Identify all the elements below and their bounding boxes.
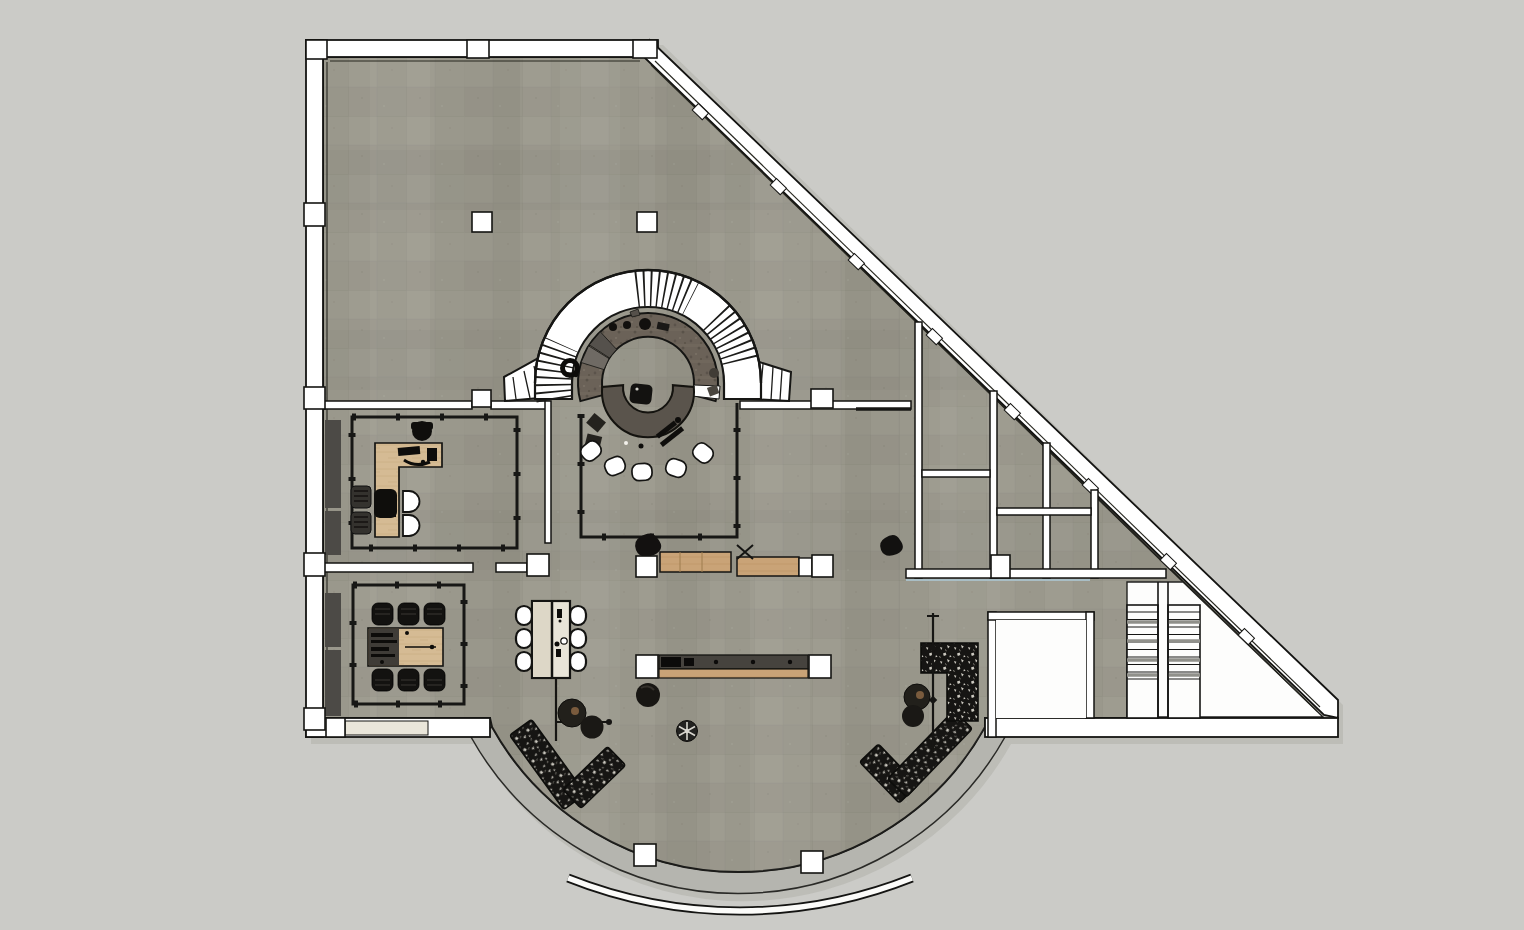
dot: [635, 387, 638, 390]
dining-set: [516, 601, 586, 678]
bar-stool: [631, 463, 652, 481]
floor-plan-canvas: [0, 0, 1524, 930]
dot: [714, 660, 718, 664]
console-front: [659, 669, 808, 678]
column: [809, 655, 831, 678]
column: [472, 212, 492, 232]
dot: [555, 642, 560, 647]
wall-office-meeting-a: [323, 563, 473, 572]
cabinet: [799, 558, 812, 576]
column: [304, 387, 325, 409]
dot: [559, 620, 562, 623]
plan-viewport: [0, 0, 1524, 930]
elevator-room: [996, 620, 1086, 718]
wall-rooms-v2: [990, 391, 997, 578]
bar-center-station: [629, 383, 653, 405]
bench: [660, 552, 731, 572]
wall-rooms-v1: [915, 322, 922, 578]
column: [812, 555, 833, 577]
console-top: [659, 655, 808, 669]
dot: [574, 373, 578, 377]
column: [636, 556, 657, 577]
coffee-table-center: [571, 707, 579, 715]
bar-sink-icon: [623, 321, 631, 329]
wall-bottom-right: [985, 718, 1338, 737]
console-equipment: [684, 658, 694, 666]
column: [991, 555, 1010, 578]
bench: [737, 557, 799, 576]
column: [633, 40, 657, 58]
bar-item: [709, 368, 719, 378]
side-stool: [351, 486, 371, 508]
column: [326, 718, 345, 737]
wall-corridor-a: [323, 401, 472, 409]
guest-chair: [403, 515, 420, 536]
ceiling-fan-icon: [677, 721, 698, 742]
dot: [788, 660, 792, 664]
wall-rooms-h1: [922, 470, 990, 477]
wall-rooms-bottom: [906, 569, 1166, 578]
column: [801, 851, 823, 873]
column: [634, 844, 656, 866]
wall-rooms-v4: [1091, 490, 1098, 578]
table-item: [556, 649, 561, 657]
coffee-table-center: [916, 691, 924, 699]
column: [636, 655, 658, 678]
side-stool: [351, 512, 371, 534]
column: [306, 40, 327, 59]
coffee-table: [902, 705, 924, 727]
dining-table-half: [533, 602, 551, 677]
phone-icon: [427, 448, 437, 461]
console-equipment: [661, 657, 681, 667]
wall-barroom-left: [545, 401, 551, 543]
dot: [624, 441, 628, 445]
column: [304, 708, 325, 730]
wall-elevator-left: [988, 612, 996, 737]
dot: [751, 660, 755, 664]
dot: [675, 417, 681, 423]
table-item: [557, 609, 562, 618]
column: [472, 390, 491, 407]
coffee-table: [581, 716, 604, 739]
column: [811, 389, 833, 408]
column: [304, 553, 325, 576]
bar-equipment-icon: [639, 318, 651, 330]
wall-office-meeting-b: [496, 563, 527, 572]
column: [637, 212, 657, 232]
wall-elevator-top: [988, 612, 1094, 620]
office-chair-back: [411, 422, 433, 430]
guest-chair: [403, 491, 420, 512]
dot: [639, 444, 644, 449]
lounge-console: [659, 655, 808, 678]
meeting-room: [368, 603, 445, 691]
beige-wall-panel: [345, 721, 428, 735]
column: [467, 40, 489, 58]
floor-lamp-head: [606, 719, 612, 725]
column: [304, 203, 325, 226]
bar-sink-icon: [609, 323, 617, 331]
plate-icon: [561, 638, 567, 644]
wall-rooms-h2: [997, 508, 1091, 515]
wall-elevator-right: [1086, 612, 1094, 718]
task-chair: [374, 489, 397, 518]
column: [527, 554, 549, 576]
